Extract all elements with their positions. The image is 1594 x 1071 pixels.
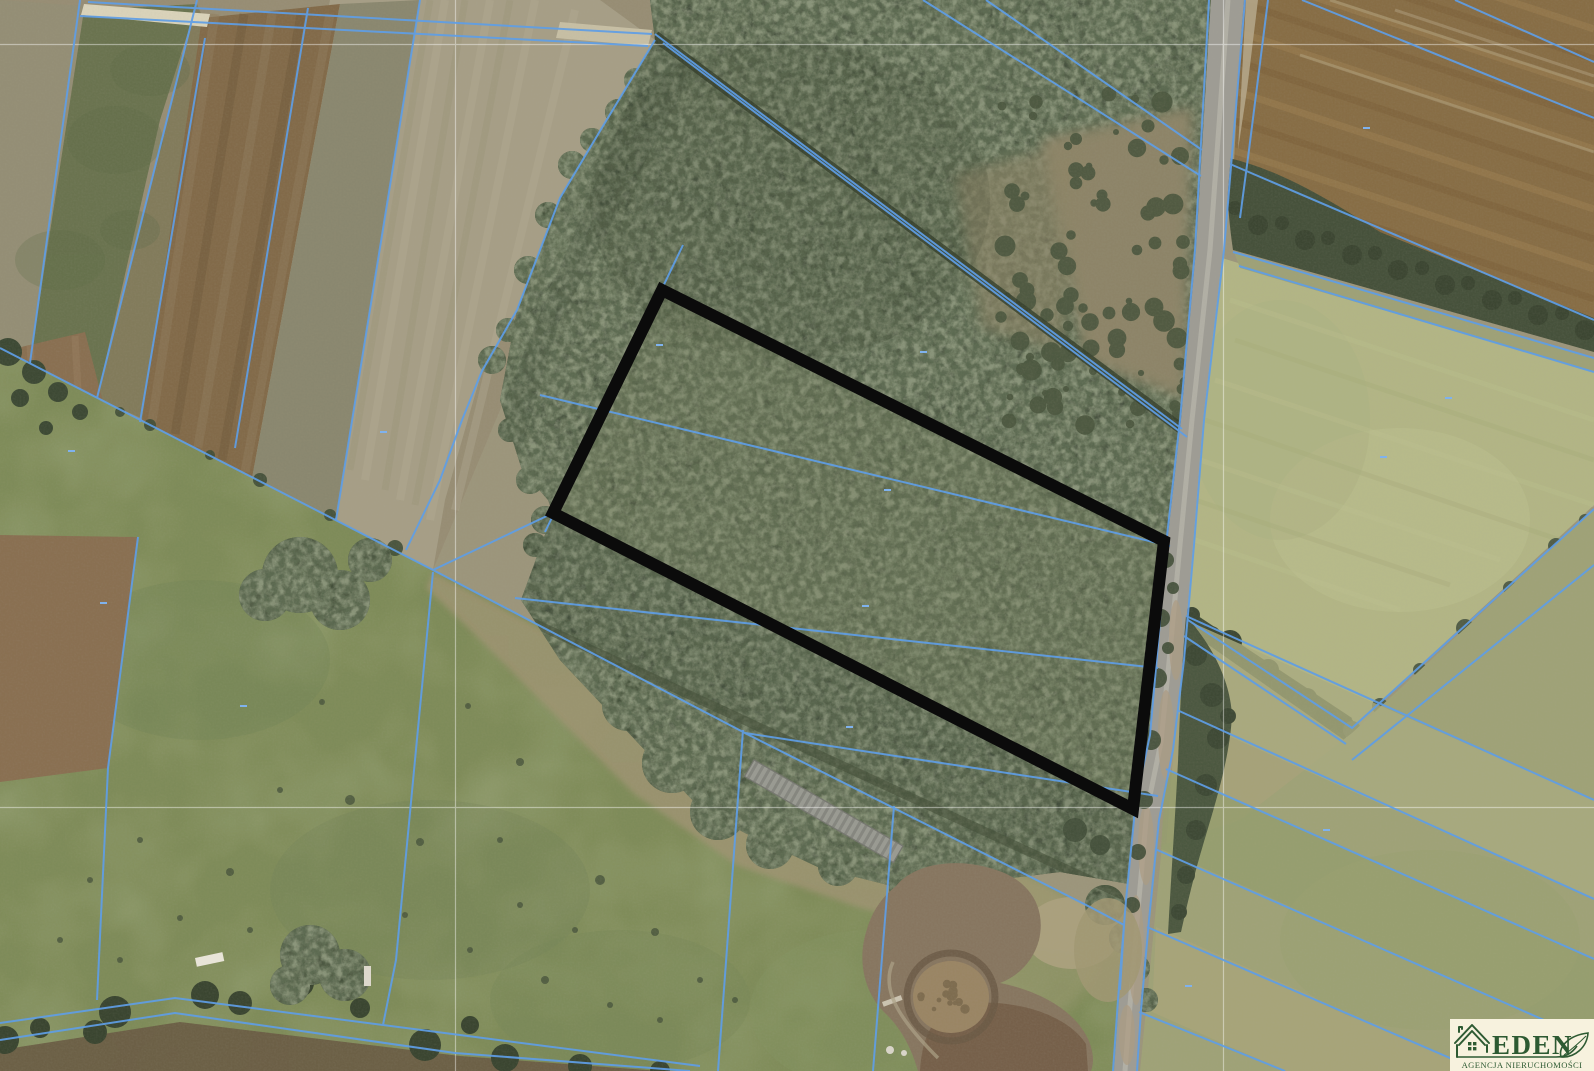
svg-text:AGENCJA NIERUCHOMOŚCI: AGENCJA NIERUCHOMOŚCI [1462, 1060, 1583, 1070]
